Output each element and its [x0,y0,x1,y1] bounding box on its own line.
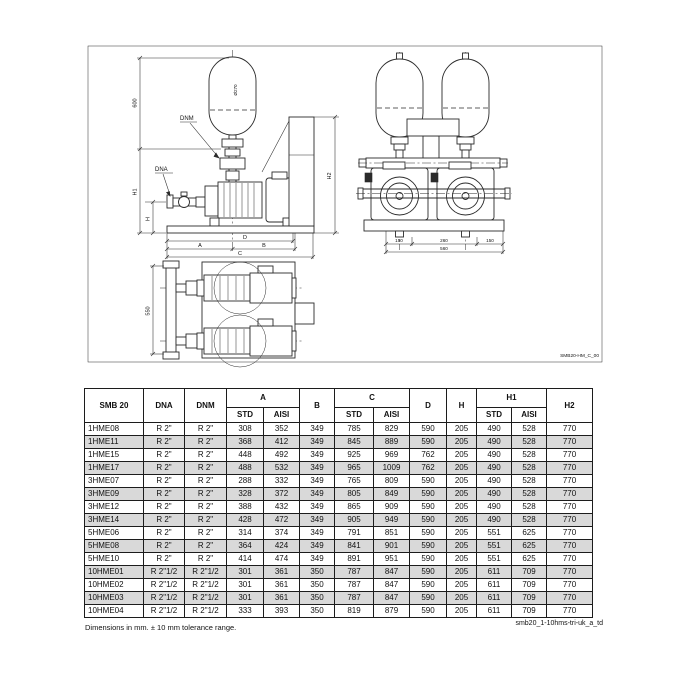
table-cell: 205 [447,436,477,449]
col-header-d: D [410,389,447,423]
table-cell: 879 [374,605,410,618]
inlet-assembly [167,192,211,208]
table-cell: R 2" [144,501,185,514]
drawing-frame [88,46,602,362]
table-cell: R 2"1/2 [185,592,227,605]
table-cell: 10HME04 [85,605,144,618]
table-row: 5HME08R 2"R 2"36442434984190159020555162… [85,540,593,553]
table-cell: 205 [447,475,477,488]
table-cell: 965 [335,462,374,475]
table-cell: 349 [300,488,335,501]
plan-view: 550 [146,261,315,367]
table-cell: R 2"1/2 [185,605,227,618]
table-cell: 490 [477,423,512,436]
tank-height-label: 600 [133,98,139,107]
table-cell: R 2" [185,449,227,462]
table-cell: 949 [374,514,410,527]
table-cell: 472 [264,514,300,527]
table-cell: 314 [227,527,264,540]
table-cell: 791 [335,527,374,540]
table-cell: 1HME11 [85,436,144,449]
table-cell: 805 [335,488,374,501]
table-cell: 891 [335,553,374,566]
table-cell: 349 [300,423,335,436]
table-cell: 10HME01 [85,566,144,579]
table-cell: 709 [512,579,547,592]
table-cell: 770 [547,501,593,514]
table-cell: 847 [374,566,410,579]
table-cell: 770 [547,566,593,579]
page: { "drawing": { "line_color": "#2b2b2b", … [0,0,700,700]
table-cell: 5HME08 [85,540,144,553]
table-cell: 611 [477,605,512,618]
table-cell: 205 [447,579,477,592]
table-cell: R 2" [144,488,185,501]
col-header-c: C [335,389,410,408]
table-cell: 787 [335,592,374,605]
front-total-label: 560 [440,246,448,251]
table-cell: 770 [547,527,593,540]
table-cell: 490 [477,475,512,488]
table-cell: R 2" [144,475,185,488]
front-seg-mid-label: 260 [440,238,448,243]
table-cell: R 2"1/2 [144,566,185,579]
table-cell: 301 [227,592,264,605]
table-row: 5HME06R 2"R 2"31437434979185159020555162… [85,527,593,540]
table-row: 5HME10R 2"R 2"41447434989195159020555162… [85,553,593,566]
table-cell: 10HME03 [85,592,144,605]
table-row: 3HME12R 2"R 2"38843234986590959020549052… [85,501,593,514]
plan-depth-label: 550 [146,306,152,315]
table-cell: 528 [512,514,547,527]
table-cell: 787 [335,579,374,592]
tank-diameter-label: Ø270 [233,84,238,96]
table-cell: 865 [335,501,374,514]
table-cell: 590 [410,514,447,527]
table-cell: 350 [300,592,335,605]
table-cell: 770 [547,475,593,488]
table-cell: 349 [300,475,335,488]
h2-dimension: H2 [314,115,339,235]
table-cell: 5HME06 [85,527,144,540]
table-cell: 414 [227,553,264,566]
table-cell: 925 [335,449,374,462]
col-header-dnm: DNM [185,389,227,423]
table-cell: 528 [512,449,547,462]
table-row: 10HME03R 2"1/2R 2"1/23013613507878475902… [85,592,593,605]
front-seg-right-label: 150 [486,238,494,243]
table-cell: 349 [300,436,335,449]
dnm-label: DNM [180,116,194,122]
table-cell: 432 [264,501,300,514]
table-row: 10HME04R 2"1/2R 2"1/23333933508198795902… [85,605,593,618]
table-cell: R 2"1/2 [144,579,185,592]
table-cell: 590 [410,566,447,579]
table-cell: 770 [547,553,593,566]
table-cell: 528 [512,423,547,436]
col-subheader-a-aisi: AISI [264,408,300,423]
dim-b-label: B [262,243,266,249]
table-cell: 528 [512,488,547,501]
technical-drawing: Ø270 DNM DNA [0,0,700,385]
table-cell: R 2"1/2 [144,605,185,618]
col-header-h1: H1 [477,389,547,408]
delivery-manifold [358,158,508,168]
table-cell: 3HME14 [85,514,144,527]
table-cell: 847 [374,592,410,605]
table-cell: R 2" [144,527,185,540]
dim-a-label: A [198,243,202,249]
table-cell: 770 [547,449,593,462]
table-cell: R 2" [185,462,227,475]
drawing-ref-label: SMB20-HM_C_00 [560,353,599,359]
table-cell: 205 [447,488,477,501]
table-cell: 770 [547,592,593,605]
table-cell: 205 [447,527,477,540]
table-cell: 3HME09 [85,488,144,501]
table-cell: 611 [477,579,512,592]
col-subheader-c-std: STD [335,408,374,423]
table-cell: 590 [410,488,447,501]
table-body: 1HME08R 2"R 2"30835234978582959020549052… [85,423,593,618]
table-cell: R 2" [185,501,227,514]
table-cell: 841 [335,540,374,553]
table-row: 1HME17R 2"R 2"48853234996510097622054905… [85,462,593,475]
table-cell: R 2" [185,436,227,449]
h1-label: H1 [133,188,139,195]
table-cell: R 2"1/2 [185,566,227,579]
table-cell: 770 [547,579,593,592]
table-cell: 590 [410,579,447,592]
table-cell: 1HME15 [85,449,144,462]
table-cell: 762 [410,449,447,462]
table-cell: 349 [300,527,335,540]
table-cell: 770 [547,436,593,449]
table-cell: 528 [512,462,547,475]
front-seg-left-label: 150 [395,238,403,243]
col-header-h2: H2 [547,389,593,423]
table-cell: 951 [374,553,410,566]
table-cell: 905 [335,514,374,527]
table-cell: 205 [447,501,477,514]
table-cell: 785 [335,423,374,436]
table-cell: R 2" [144,449,185,462]
table-cell: 490 [477,449,512,462]
table-row: 1HME08R 2"R 2"30835234978582959020549052… [85,423,593,436]
h2-label: H2 [327,172,333,179]
table-cell: 424 [264,540,300,553]
dimensions-table: SMB 20 DNA DNM A B C D H H1 H2 STD AISI … [84,388,593,618]
side-view: Ø270 DNM DNA [133,50,340,259]
base-front [364,220,504,237]
table-cell: 349 [300,514,335,527]
table-cell: 625 [512,527,547,540]
table-cell: 490 [477,436,512,449]
table-cell: 349 [300,462,335,475]
col-header-b: B [300,389,335,423]
table-cell: 709 [512,566,547,579]
table-cell: 350 [300,579,335,592]
table-cell: R 2" [185,553,227,566]
dim-d-label: D [243,235,247,241]
table-cell: 770 [547,423,593,436]
table-cell: R 2" [144,540,185,553]
table-cell: 770 [547,514,593,527]
col-header-model: SMB 20 [85,389,144,423]
table-cell: 490 [477,488,512,501]
table-cell: 590 [410,540,447,553]
table-row: 3HME07R 2"R 2"28833234976580959020549052… [85,475,593,488]
table-cell: 10HME02 [85,579,144,592]
table-cell: 590 [410,475,447,488]
horizontal-dimensions: D A B C [165,233,315,259]
table-cell: 762 [410,462,447,475]
table-cell: 590 [410,592,447,605]
table-cell: 205 [447,514,477,527]
table-cell: 388 [227,501,264,514]
col-subheader-h1-std: STD [477,408,512,423]
table-cell: 851 [374,527,410,540]
panel-plan [295,303,314,324]
table-cell: 625 [512,553,547,566]
table-cell: R 2" [144,436,185,449]
table-cell: R 2"1/2 [144,592,185,605]
table-cell: 374 [264,527,300,540]
col-header-dna: DNA [144,389,185,423]
table-cell: 412 [264,436,300,449]
table-cell: 205 [447,462,477,475]
table-cell: R 2" [144,553,185,566]
dim-c-label: C [238,251,242,257]
table-cell: 361 [264,579,300,592]
table-cell: 3HME12 [85,501,144,514]
table-cell: 532 [264,462,300,475]
pumps-plan [197,266,296,356]
table-cell: 770 [547,462,593,475]
table-cell: 590 [410,527,447,540]
table-cell: 349 [300,540,335,553]
table-cell: 809 [374,475,410,488]
table-cell: R 2" [185,423,227,436]
table-cell: 551 [477,540,512,553]
discharge-pipe [220,135,245,184]
document-reference: smb20_1-10hms-tri-uk_a_td [0,620,603,627]
table-cell: R 2" [185,514,227,527]
table-cell: 901 [374,540,410,553]
col-subheader-c-aisi: AISI [374,408,410,423]
table-cell: 819 [335,605,374,618]
table-cell: 770 [547,605,593,618]
table-row: 1HME15R 2"R 2"44849234992596976220549052… [85,449,593,462]
table-cell: 847 [374,579,410,592]
col-subheader-a-std: STD [227,408,264,423]
table-cell: R 2" [185,488,227,501]
table-cell: 301 [227,579,264,592]
table-cell: 787 [335,566,374,579]
table-cell: 448 [227,449,264,462]
table-cell: 590 [410,501,447,514]
table-cell: 488 [227,462,264,475]
table-cell: 765 [335,475,374,488]
table-row: 10HME01R 2"1/2R 2"1/23013613507878475902… [85,566,593,579]
table-cell: 590 [410,436,447,449]
table-cell: 490 [477,501,512,514]
h-label: H [146,217,152,221]
table-cell: 352 [264,423,300,436]
table-cell: 590 [410,423,447,436]
table-cell: 1009 [374,462,410,475]
table-cell: 611 [477,592,512,605]
table-cell: 528 [512,501,547,514]
table-cell: 301 [227,566,264,579]
pressure-tank-side: Ø270 [209,57,256,135]
table-cell: 205 [447,449,477,462]
table-cell: 709 [512,605,547,618]
table-cell: R 2"1/2 [185,579,227,592]
table-cell: 205 [447,566,477,579]
table-cell: 350 [300,566,335,579]
table-cell: 770 [547,540,593,553]
table-cell: 625 [512,540,547,553]
table-cell: 364 [227,540,264,553]
table-cell: 3HME07 [85,475,144,488]
table-cell: 361 [264,566,300,579]
table-cell: 829 [374,423,410,436]
table-cell: 845 [335,436,374,449]
table-cell: R 2" [144,423,185,436]
table-cell: 490 [477,462,512,475]
table-cell: 368 [227,436,264,449]
table-row: 1HME11R 2"R 2"36841234984588959020549052… [85,436,593,449]
table-cell: 205 [447,553,477,566]
table-cell: R 2" [185,475,227,488]
table-cell: 611 [477,566,512,579]
table-cell: 849 [374,488,410,501]
plan-depth-dimension: 550 [146,264,165,356]
table-cell: 551 [477,553,512,566]
table-cell: 889 [374,436,410,449]
table-cell: 492 [264,449,300,462]
table-cell: R 2" [144,514,185,527]
table-cell: 474 [264,553,300,566]
table-cell: 328 [227,488,264,501]
table-cell: 490 [477,514,512,527]
table-cell: 350 [300,605,335,618]
table-cell: 428 [227,514,264,527]
table-cell: 1HME17 [85,462,144,475]
table-cell: 205 [447,592,477,605]
table-cell: 332 [264,475,300,488]
table-cell: 528 [512,436,547,449]
table-cell: 333 [227,605,264,618]
table-row: 3HME09R 2"R 2"32837234980584959020549052… [85,488,593,501]
table-cell: 393 [264,605,300,618]
col-subheader-h1-aisi: AISI [512,408,547,423]
table-cell: 288 [227,475,264,488]
table-cell: 349 [300,553,335,566]
table-cell: R 2" [185,527,227,540]
table-cell: 909 [374,501,410,514]
table-cell: 770 [547,488,593,501]
table-cell: 1HME08 [85,423,144,436]
table-cell: 361 [264,592,300,605]
table-cell: 551 [477,527,512,540]
table-cell: R 2" [144,462,185,475]
dna-label: DNA [155,167,168,173]
table-cell: 205 [447,540,477,553]
col-header-a: A [227,389,300,408]
table-row: 3HME14R 2"R 2"42847234990594959020549052… [85,514,593,527]
table-cell: 205 [447,605,477,618]
col-header-h: H [447,389,477,423]
table-cell: 5HME10 [85,553,144,566]
table-cell: 349 [300,449,335,462]
table-cell: R 2" [185,540,227,553]
table-cell: 349 [300,501,335,514]
table-row: 10HME02R 2"1/2R 2"1/23013613507878475902… [85,579,593,592]
table-cell: 969 [374,449,410,462]
table-cell: 709 [512,592,547,605]
table-cell: 590 [410,553,447,566]
table-cell: 590 [410,605,447,618]
table-cell: 205 [447,423,477,436]
table-cell: 308 [227,423,264,436]
front-view: 150 260 150 560 [356,52,512,254]
table-cell: 528 [512,475,547,488]
table-cell: 372 [264,488,300,501]
